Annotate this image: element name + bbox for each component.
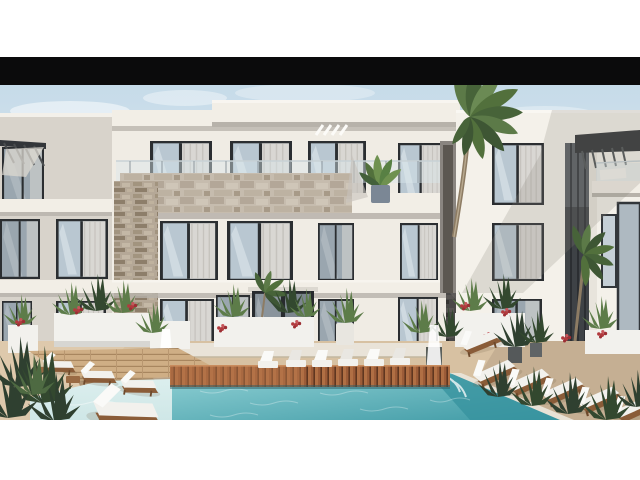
window: [318, 223, 354, 281]
planter: [585, 330, 640, 354]
window: [227, 221, 293, 281]
plant-pot: [336, 323, 354, 345]
facade-joint-strip: [440, 141, 456, 293]
tall-window: [618, 203, 640, 345]
window: [56, 219, 108, 279]
window: [0, 219, 40, 279]
letterbox-bar: [0, 57, 640, 85]
window: [400, 223, 438, 281]
scene-svg: [0, 85, 640, 420]
pool-wood-edge: [170, 365, 450, 389]
planter: [8, 325, 38, 353]
property-rendering-image: [0, 57, 640, 420]
plant-pot: [508, 347, 522, 363]
window: [160, 221, 218, 281]
plant-pot: [530, 343, 542, 357]
page-background: [0, 0, 640, 480]
planter: [214, 317, 314, 347]
